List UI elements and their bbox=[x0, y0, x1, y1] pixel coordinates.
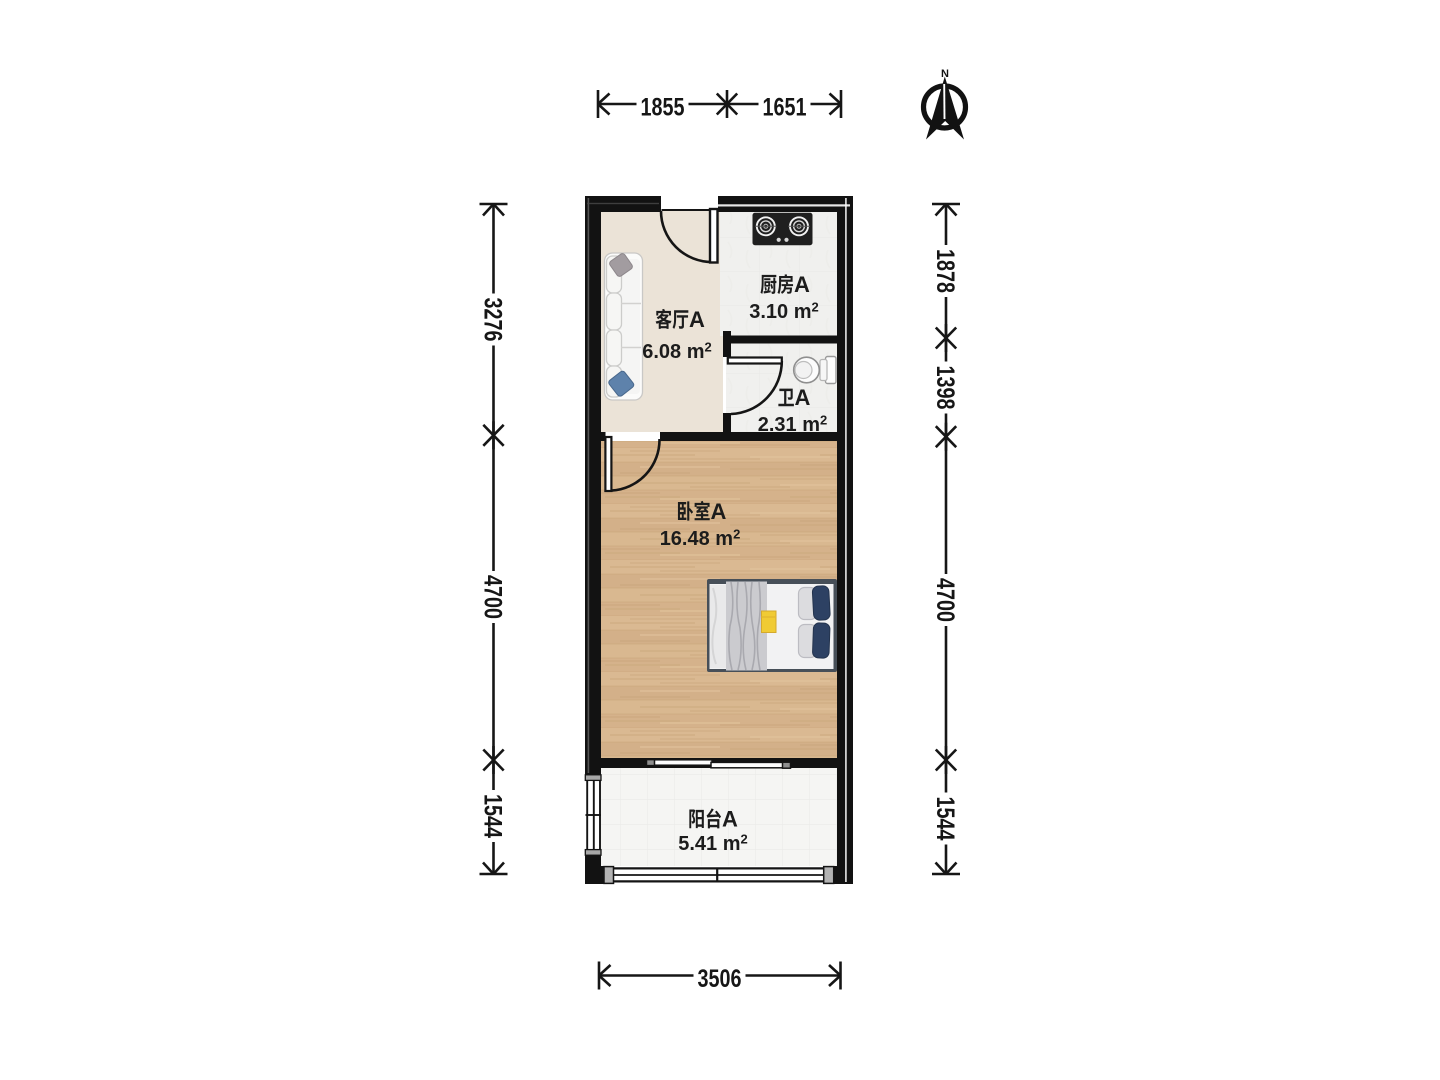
svg-text:3506: 3506 bbox=[698, 965, 742, 993]
svg-text:4700: 4700 bbox=[479, 575, 507, 619]
svg-text:1878: 1878 bbox=[931, 249, 959, 293]
svg-text:N: N bbox=[941, 68, 949, 80]
svg-text:A: A bbox=[722, 807, 738, 832]
svg-text:A: A bbox=[795, 385, 811, 410]
svg-text:3.10 m2: 3.10 m2 bbox=[749, 300, 819, 324]
svg-text:1651: 1651 bbox=[763, 94, 807, 122]
svg-text:5.41 m2: 5.41 m2 bbox=[678, 832, 748, 856]
svg-text:A: A bbox=[794, 272, 810, 297]
svg-text:2.31 m2: 2.31 m2 bbox=[758, 413, 828, 437]
svg-text:A: A bbox=[711, 499, 727, 524]
svg-text:3276: 3276 bbox=[479, 298, 507, 342]
svg-text:4700: 4700 bbox=[931, 578, 959, 622]
svg-text:1398: 1398 bbox=[931, 366, 959, 410]
svg-text:A: A bbox=[689, 307, 705, 332]
svg-text:1855: 1855 bbox=[641, 94, 685, 122]
svg-text:1544: 1544 bbox=[931, 797, 959, 841]
svg-text:16.48 m2: 16.48 m2 bbox=[660, 527, 741, 551]
svg-text:1544: 1544 bbox=[479, 794, 507, 838]
svg-text:6.08 m2: 6.08 m2 bbox=[642, 340, 712, 364]
